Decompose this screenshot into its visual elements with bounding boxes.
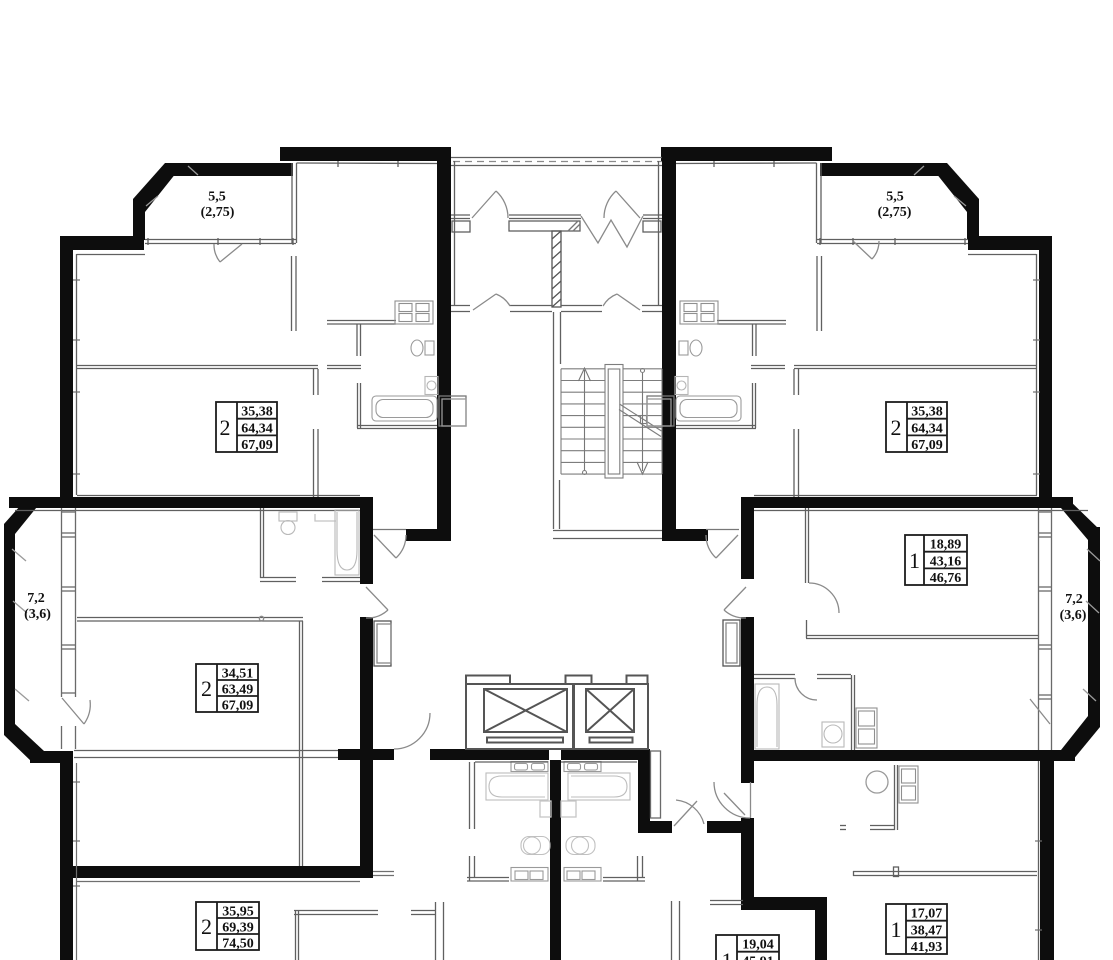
svg-text:5,5: 5,5 bbox=[886, 190, 904, 205]
svg-text:5,5: 5,5 bbox=[208, 190, 226, 205]
svg-text:74,50: 74,50 bbox=[222, 936, 254, 951]
svg-text:2: 2 bbox=[220, 415, 231, 440]
svg-text:(3,6): (3,6) bbox=[1060, 608, 1087, 623]
svg-text:(2,75): (2,75) bbox=[201, 205, 235, 220]
svg-text:67,09: 67,09 bbox=[911, 438, 943, 453]
svg-text:67,09: 67,09 bbox=[222, 698, 254, 713]
svg-text:2: 2 bbox=[891, 415, 902, 440]
svg-text:1: 1 bbox=[722, 948, 733, 960]
svg-text:17,07: 17,07 bbox=[911, 907, 943, 922]
svg-text:46,76: 46,76 bbox=[930, 571, 962, 586]
svg-text:67,09: 67,09 bbox=[241, 438, 273, 453]
svg-text:7,2: 7,2 bbox=[1065, 592, 1083, 607]
svg-text:(2,75): (2,75) bbox=[878, 205, 912, 220]
svg-text:35,38: 35,38 bbox=[911, 405, 943, 420]
svg-text:64,34: 64,34 bbox=[241, 421, 273, 436]
svg-text:45,91: 45,91 bbox=[742, 954, 774, 960]
svg-text:35,95: 35,95 bbox=[222, 904, 254, 919]
svg-text:43,16: 43,16 bbox=[930, 554, 962, 569]
svg-text:38,47: 38,47 bbox=[911, 923, 943, 938]
svg-text:34,51: 34,51 bbox=[222, 666, 254, 681]
svg-text:18,89: 18,89 bbox=[930, 538, 962, 553]
svg-text:19,04: 19,04 bbox=[742, 938, 774, 953]
svg-text:7,2: 7,2 bbox=[27, 591, 45, 606]
svg-text:1: 1 bbox=[891, 917, 902, 942]
svg-text:1: 1 bbox=[909, 548, 920, 573]
svg-text:41,93: 41,93 bbox=[911, 940, 943, 955]
svg-text:63,49: 63,49 bbox=[222, 682, 254, 697]
svg-text:35,38: 35,38 bbox=[241, 405, 273, 420]
svg-text:64,34: 64,34 bbox=[911, 421, 943, 436]
svg-text:(3,6): (3,6) bbox=[24, 607, 51, 622]
svg-text:2: 2 bbox=[201, 676, 212, 701]
svg-text:69,39: 69,39 bbox=[222, 920, 254, 935]
svg-text:2: 2 bbox=[201, 914, 212, 939]
